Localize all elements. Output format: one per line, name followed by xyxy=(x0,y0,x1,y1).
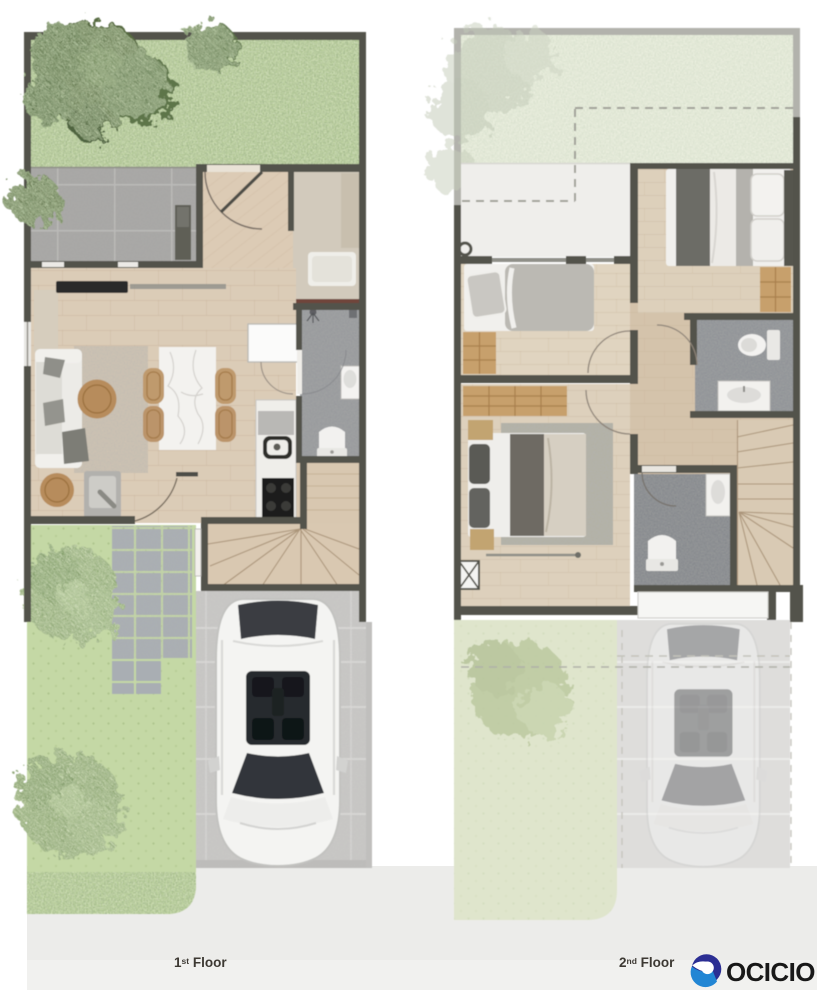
svg-text:OCICIO: OCICIO xyxy=(726,957,815,987)
